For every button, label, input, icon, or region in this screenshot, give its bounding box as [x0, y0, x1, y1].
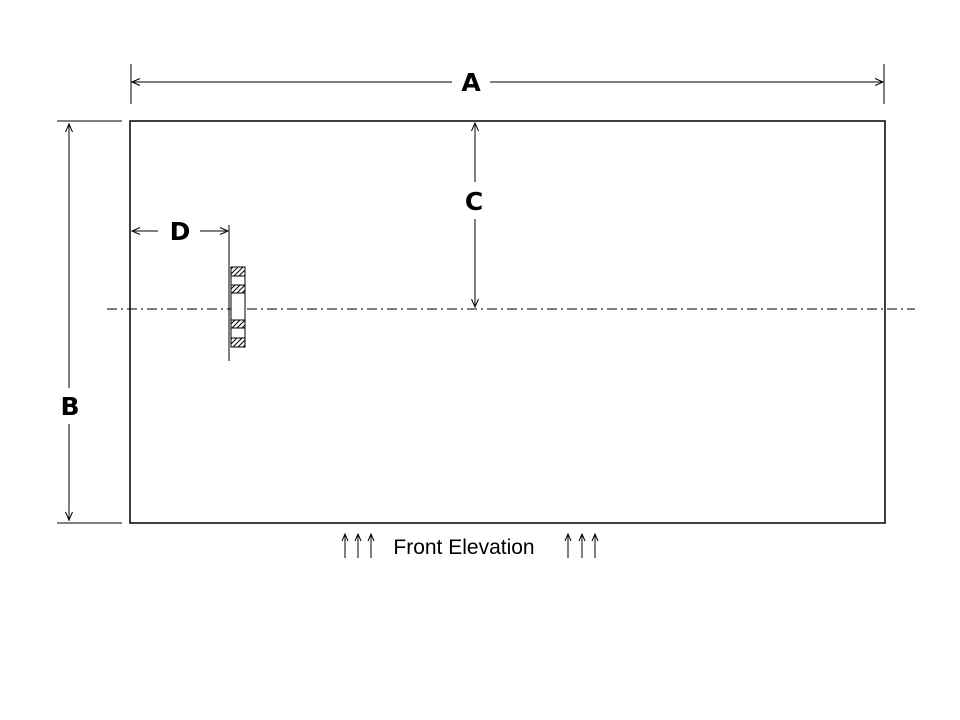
up-arrow-icon: [592, 534, 598, 558]
caption-group: Front Elevation: [342, 534, 598, 559]
drawing-title: Front Elevation: [393, 536, 534, 559]
up-arrow-icon: [368, 534, 374, 558]
dimension-c: C: [465, 123, 483, 307]
drawing-page: A B C D: [0, 0, 960, 720]
dimension-c-label: C: [465, 187, 483, 216]
dimension-d: D: [132, 217, 229, 361]
front-elevation-drawing: A B C D: [0, 0, 960, 720]
plain-box: [231, 328, 245, 338]
hatched-box: [231, 285, 245, 293]
flow-arrows-left: [342, 534, 374, 558]
hatched-box: [231, 267, 245, 276]
hatched-box: [231, 338, 245, 347]
up-arrow-icon: [342, 534, 348, 558]
dimension-b-label: B: [60, 392, 79, 421]
plain-box: [231, 293, 245, 320]
up-arrow-icon: [355, 534, 361, 558]
dimension-b: B: [57, 121, 122, 523]
dimension-d-label: D: [170, 217, 191, 246]
flow-arrows-right: [565, 534, 598, 558]
up-arrow-icon: [565, 534, 571, 558]
hatched-box: [231, 320, 245, 328]
hatched-stud-detail: [231, 267, 245, 347]
dimension-a: A: [131, 64, 884, 104]
dimension-a-label: A: [461, 68, 481, 97]
plain-box: [231, 276, 245, 285]
up-arrow-icon: [579, 534, 585, 558]
